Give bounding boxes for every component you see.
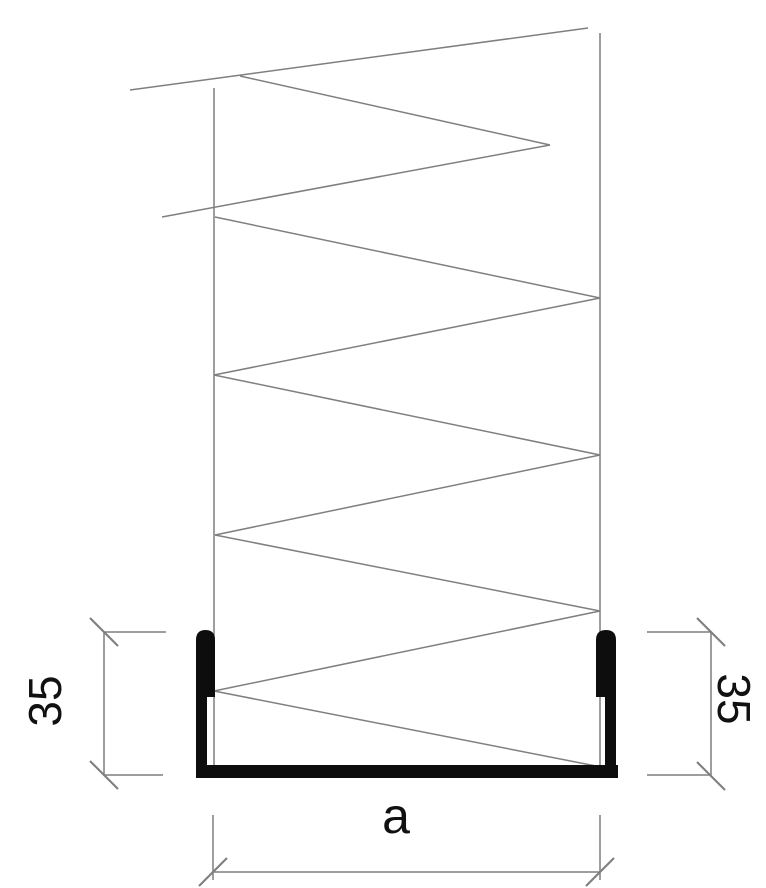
channel-profile [196, 630, 618, 778]
zigzag-segment-2 [240, 76, 550, 145]
dimension-right: 35 [647, 618, 760, 790]
zigzag-segment-8 [215, 535, 600, 611]
zigzag-segment-4 [215, 217, 600, 298]
zigzag-segment-6 [214, 375, 600, 455]
zigzag-segment-10 [214, 691, 596, 766]
technical-drawing-canvas: 35 35 a [0, 0, 766, 888]
zigzag-segment-1 [130, 28, 588, 90]
zigzag-segment-7 [215, 455, 600, 535]
channel-bottom-flange [196, 765, 618, 778]
channel-right-hem [596, 630, 616, 697]
dimension-left: 35 [19, 618, 166, 789]
zigzag-segment-9 [214, 611, 600, 691]
dimension-right-label: 35 [708, 673, 760, 724]
zigzag-segment-3 [162, 145, 550, 217]
zigzag-segment-5 [214, 298, 600, 375]
channel-left-hem [196, 630, 215, 697]
dimension-bottom: a [199, 788, 614, 886]
channel-left-wall [196, 688, 207, 778]
dimension-bottom-label: a [382, 788, 410, 844]
channel-right-wall [605, 688, 616, 778]
channel-profile-drawing: 35 35 a [0, 0, 766, 888]
dimension-left-label: 35 [19, 675, 71, 726]
